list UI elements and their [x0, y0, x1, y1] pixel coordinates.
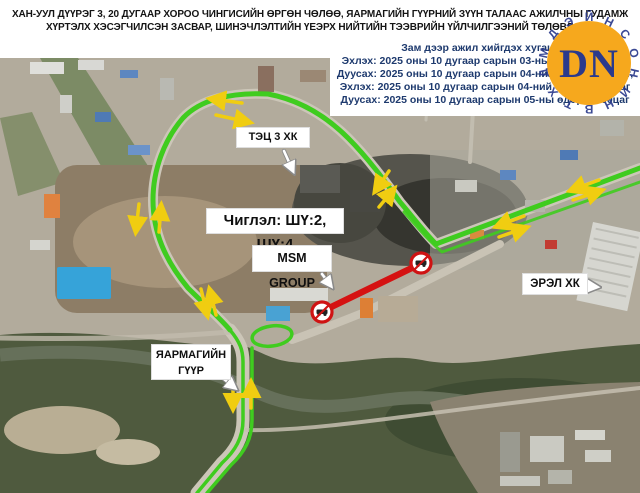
no-entry-sign-icon [411, 253, 431, 273]
logo-monogram: DN [559, 40, 619, 87]
label-erel: ЭРЭЛ ХК [522, 273, 588, 295]
label-yarmag-bridge-line2: ГҮҮР [152, 363, 230, 379]
page-title-line1: ХАН-УУЛ ДҮҮРЭГ 3, 20 ДУГААР ХОРОО ЧИНГИС… [0, 8, 640, 21]
no-entry-sign-icon [312, 302, 332, 322]
label-tec3: ТЭЦ 3 ХК [236, 127, 310, 148]
label-msm-group: MSM GROUP [252, 245, 332, 272]
label-yarmag-bridge: ЯАРМАГИЙН ГҮҮР [151, 344, 231, 380]
logo-circle: DN [547, 21, 631, 105]
dn-logo: ЙНСОНИНВТХДМДЭ DN [547, 21, 631, 105]
label-direction: Чиглэл: ШҮ:2, ШҮ:4 [206, 208, 344, 234]
label-yarmag-bridge-line1: ЯАРМАГИЙН [152, 347, 230, 363]
